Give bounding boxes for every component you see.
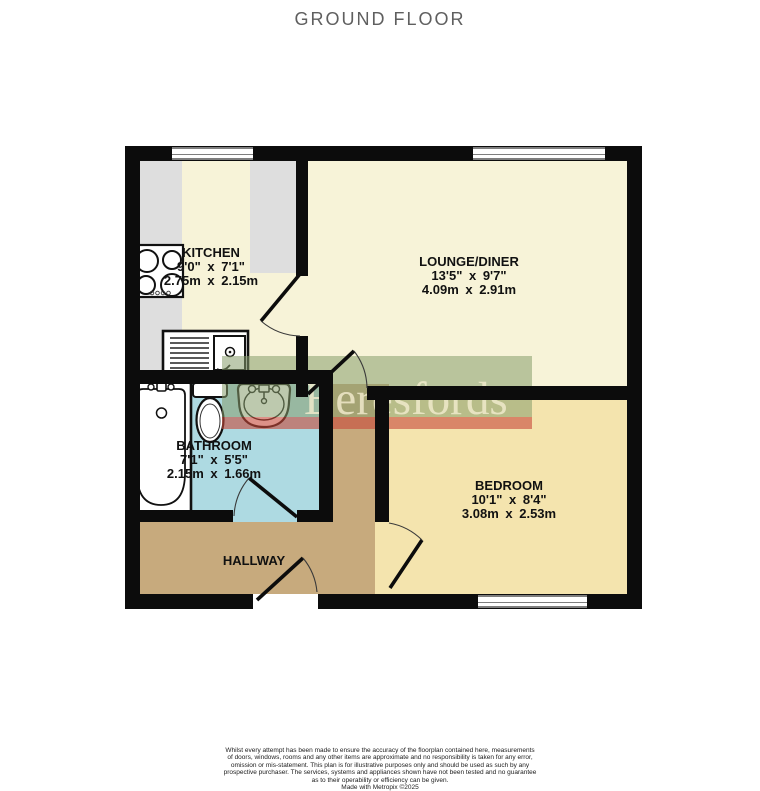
lounge-label: LOUNGE/DINER 13'5" x 9'7" 4.09m x 2.91m	[419, 255, 519, 297]
wall-bathroom-bottom-left	[125, 510, 233, 522]
disclaimer-line: omission or mis-statement. This plan is …	[0, 762, 760, 769]
bedroom-window	[478, 595, 587, 608]
bedroom-label-metric: 3.08m x 2.53m	[462, 507, 556, 521]
disclaimer-line: Whilst every attempt has been made to en…	[0, 747, 760, 754]
bathroom-label-name: BATHROOM	[167, 439, 261, 453]
kitchen-label-imperial: 9'0" x 7'1"	[164, 260, 258, 274]
wall-outer-right	[627, 146, 642, 609]
bathroom-label-metric: 2.15m x 1.66m	[167, 467, 261, 481]
lounge-window	[473, 147, 605, 160]
disclaimer-line: as to their operability or efficiency ca…	[0, 777, 760, 784]
wall-bathroom-bottom-right	[297, 510, 333, 522]
bathroom-label: BATHROOM 7'1" x 5'5" 2.15m x 1.66m	[167, 439, 261, 481]
wall-outer-bottom-left	[125, 594, 253, 609]
disclaimer-credit: Made with Metropix ©2025	[0, 784, 760, 791]
disclaimer-line: prospective purchaser. The services, sys…	[0, 769, 760, 776]
hallway-label-name: HALLWAY	[223, 554, 285, 568]
bedroom-label: BEDROOM 10'1" x 8'4" 3.08m x 2.53m	[462, 479, 556, 521]
hallway-label: HALLWAY	[223, 554, 285, 568]
kitchen-label-metric: 2.75m x 2.15m	[164, 274, 258, 288]
kitchen-window	[172, 147, 253, 160]
wall-bedroom-left	[375, 400, 389, 522]
page-title: GROUND FLOOR	[0, 9, 760, 30]
wall-bathroom-right	[319, 384, 333, 522]
bedroom-label-name: BEDROOM	[462, 479, 556, 493]
disclaimer: Whilst every attempt has been made to en…	[0, 747, 760, 791]
wall-kitchen-bathroom	[125, 370, 333, 384]
bedroom-label-imperial: 10'1" x 8'4"	[462, 493, 556, 507]
wall-kitchen-lounge-lower	[296, 336, 308, 397]
kitchen-label-name: KITCHEN	[164, 246, 258, 260]
bathroom-label-imperial: 7'1" x 5'5"	[167, 453, 261, 467]
kitchen-label: KITCHEN 9'0" x 7'1" 2.75m x 2.15m	[164, 246, 258, 288]
lounge-label-metric: 4.09m x 2.91m	[419, 283, 519, 297]
wall-lounge-bedroom	[367, 386, 628, 400]
wall-kitchen-lounge-upper	[296, 161, 308, 276]
disclaimer-line: of doors, windows, rooms and any other i…	[0, 754, 760, 761]
lounge-label-imperial: 13'5" x 9'7"	[419, 269, 519, 283]
lounge-label-name: LOUNGE/DINER	[419, 255, 519, 269]
